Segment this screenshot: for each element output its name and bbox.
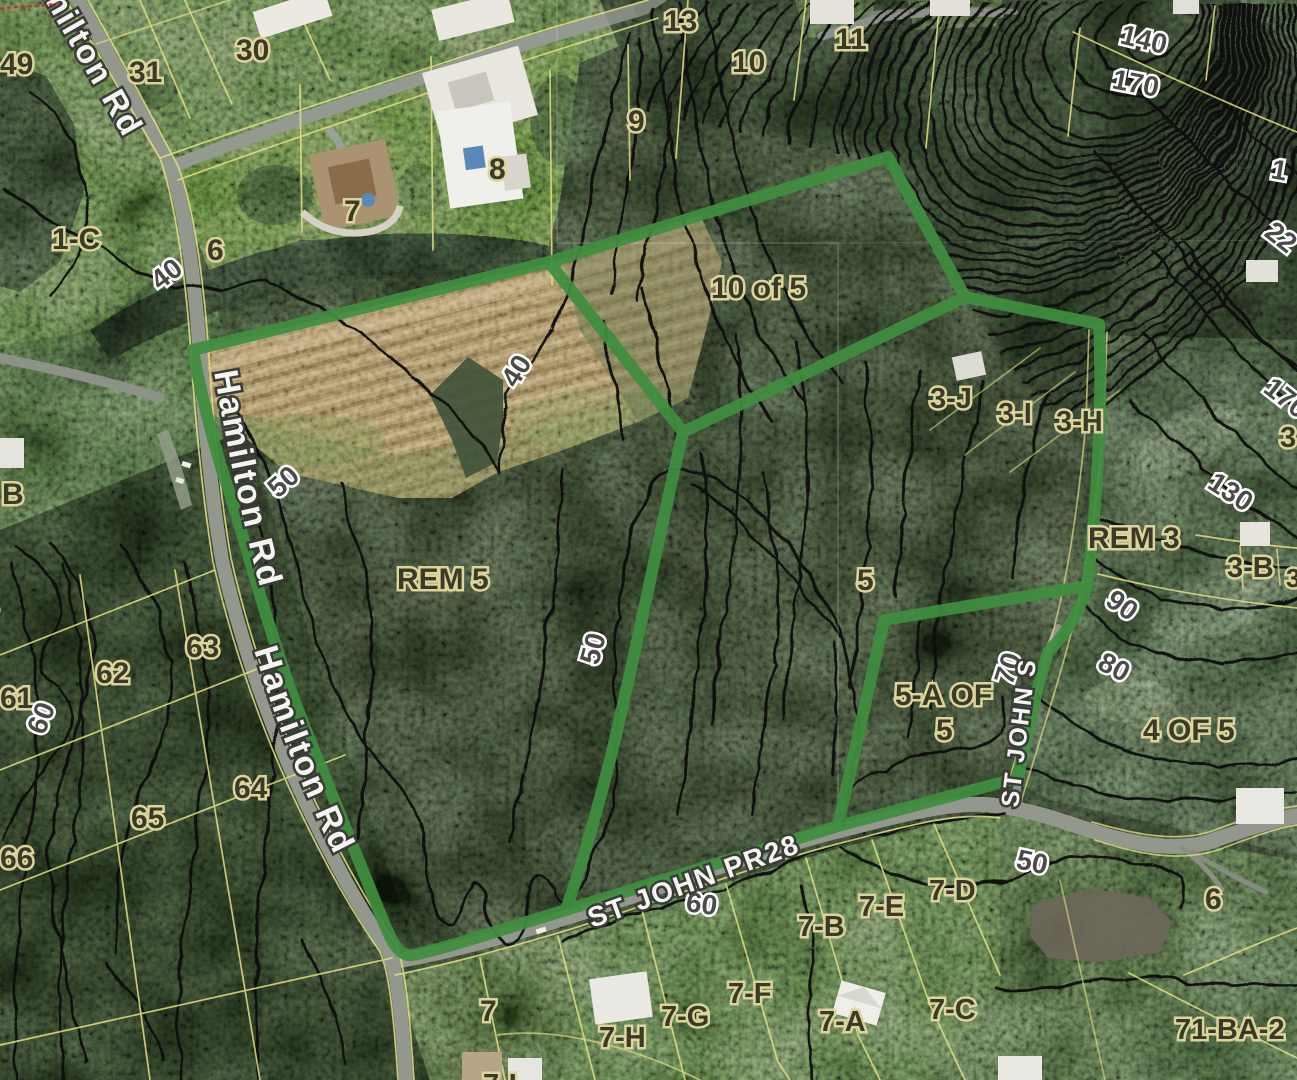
svg-text:9: 9 xyxy=(628,105,645,138)
svg-text:3: 3 xyxy=(1280,422,1296,454)
svg-text:5-A OF: 5-A OF xyxy=(895,679,992,712)
svg-text:50: 50 xyxy=(1014,844,1051,881)
svg-text:6: 6 xyxy=(1205,883,1222,916)
svg-text:11: 11 xyxy=(835,23,867,56)
svg-text:7-F: 7-F xyxy=(728,978,772,1010)
svg-text:7-G: 7-G xyxy=(661,1001,709,1033)
svg-text:13: 13 xyxy=(664,5,697,38)
svg-text:7-L: 7-L xyxy=(483,1069,527,1080)
svg-text:7-D: 7-D xyxy=(929,875,976,907)
svg-text:3-B: 3-B xyxy=(1227,552,1274,584)
svg-text:3-J: 3-J xyxy=(930,383,972,415)
svg-text:7-E: 7-E xyxy=(859,891,904,923)
svg-text:5: 5 xyxy=(936,714,953,747)
svg-text:7: 7 xyxy=(480,995,497,1028)
svg-text:REM 5: REM 5 xyxy=(397,563,489,596)
svg-text:64: 64 xyxy=(234,772,268,805)
svg-text:10: 10 xyxy=(732,46,765,79)
svg-text:66: 66 xyxy=(0,842,33,875)
svg-text:7-A: 7-A xyxy=(819,1006,866,1038)
svg-text:1-C: 1-C xyxy=(52,223,100,256)
svg-text:31: 31 xyxy=(129,56,162,89)
svg-text:8: 8 xyxy=(489,153,506,186)
svg-text:REM 3: REM 3 xyxy=(1088,522,1180,555)
svg-text:7: 7 xyxy=(344,195,361,228)
svg-text:7-H: 7-H xyxy=(599,1022,646,1054)
svg-text:7-C: 7-C xyxy=(929,994,976,1026)
svg-text:5: 5 xyxy=(857,564,874,597)
svg-text:7-B: 7-B xyxy=(798,911,845,943)
svg-text:3-I: 3-I xyxy=(998,398,1032,430)
svg-text:4 OF 5: 4 OF 5 xyxy=(1143,714,1235,747)
svg-text:B: B xyxy=(2,478,24,511)
svg-text:3: 3 xyxy=(1286,563,1297,593)
svg-text:65: 65 xyxy=(131,802,164,835)
svg-text:3-H: 3-H xyxy=(1056,406,1103,438)
svg-text:62: 62 xyxy=(96,657,129,690)
svg-text:6: 6 xyxy=(207,234,224,267)
svg-text:30: 30 xyxy=(236,34,269,67)
svg-text:49: 49 xyxy=(0,48,33,81)
svg-text:71-BA-2: 71-BA-2 xyxy=(1175,1014,1285,1046)
svg-text:10 of 5: 10 of 5 xyxy=(711,272,806,305)
svg-text:63: 63 xyxy=(186,631,219,664)
